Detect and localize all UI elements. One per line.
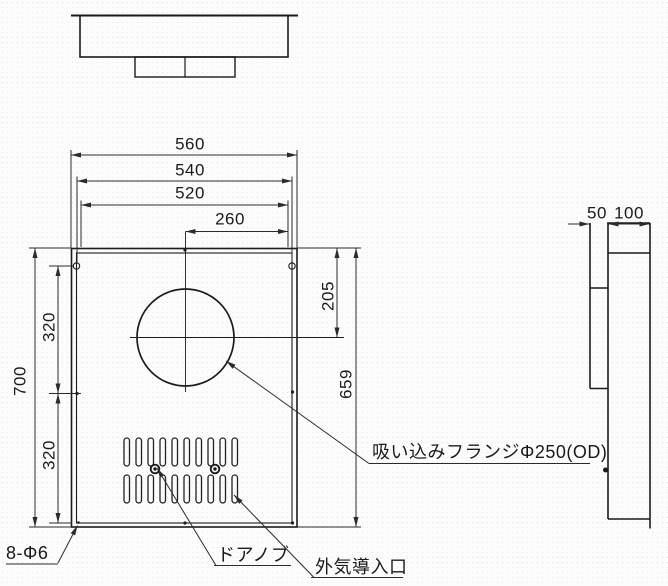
dim-520-label: 520: [175, 185, 205, 202]
dimension-lines: [29, 150, 650, 527]
side-view: [590, 223, 650, 529]
body-outline-top: [80, 16, 288, 58]
top-view: [71, 16, 298, 78]
air-inlet-callout: 外気導入口: [315, 558, 408, 576]
air-inlet-vent-slots: [124, 438, 238, 503]
dim-540-label: 540: [175, 162, 205, 179]
door-knob-leader: [157, 468, 216, 566]
holes-callout: 8-Φ6: [6, 544, 48, 562]
front-view: [72, 232, 345, 528]
door-knob-callout: ドアノブ: [217, 546, 289, 564]
dim-50-label: 50: [587, 205, 607, 222]
dim-260-label: 260: [215, 211, 245, 228]
dim-320-upper-label: 320: [41, 312, 58, 342]
suction-flange-callout: 吸い込みフランジΦ250(OD): [372, 443, 607, 461]
dim-560-label: 560: [175, 136, 205, 153]
door-knob-side: [603, 468, 608, 473]
technical-drawing-sheet: 560 540 520 260 700 320 320 205 659 50 1…: [0, 0, 668, 586]
dim-700-label: 700: [12, 366, 29, 396]
dim-100-label: 100: [614, 205, 644, 222]
dim-659-label: 659: [338, 369, 355, 399]
dim-205-label: 205: [320, 281, 337, 311]
dim-320-lower-label: 320: [41, 440, 58, 470]
leader-lines: [6, 361, 590, 578]
holes-leader: [58, 526, 78, 564]
